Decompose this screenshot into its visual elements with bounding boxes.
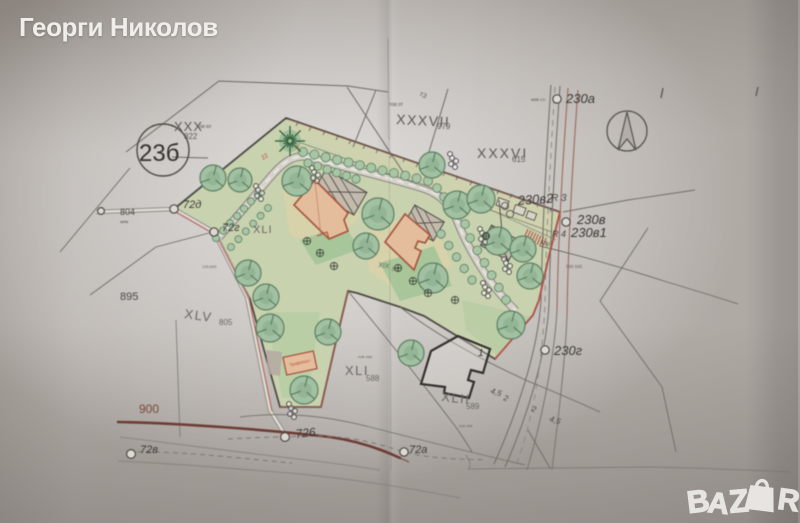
svg-text:230в2: 230в2: [516, 190, 554, 208]
svg-text:2: 2: [501, 393, 509, 403]
svg-text:XLV: XLV: [184, 306, 214, 325]
svg-text:жив со: жив со: [531, 97, 545, 102]
svg-text:зв4в: зв4в: [120, 219, 128, 224]
svg-text:230а: 230а: [565, 91, 595, 106]
svg-text:588: 588: [366, 374, 380, 383]
svg-text:72д: 72д: [183, 199, 201, 211]
svg-text:595 595: 595 595: [566, 264, 583, 269]
svg-text:804: 804: [120, 207, 135, 217]
svg-text:т3: т3: [418, 91, 428, 101]
svg-text:XLI: XLI: [253, 224, 273, 236]
svg-text:230г: 230г: [553, 343, 583, 358]
svg-text:900: 900: [139, 402, 159, 416]
svg-text:2: 2: [529, 404, 537, 414]
svg-text:1: 1: [478, 348, 484, 359]
svg-text:105.895: 105.895: [202, 264, 217, 269]
svg-text:72в: 72в: [140, 444, 158, 456]
svg-text:822: 822: [184, 132, 198, 141]
svg-text:589: 589: [466, 402, 480, 411]
svg-text:8: 8: [296, 145, 299, 151]
svg-text:726: 726: [295, 425, 317, 441]
svg-text:72г: 72г: [222, 222, 240, 234]
svg-text:805: 805: [219, 318, 233, 327]
svg-text:587: 587: [392, 267, 401, 273]
svg-text:тов от: тов от: [389, 102, 404, 108]
svg-text:4,5: 4,5: [548, 414, 562, 426]
svg-text:23б: 23б: [139, 140, 179, 167]
svg-text:A: A: [706, 487, 730, 519]
svg-text:230в1: 230в1: [570, 225, 607, 240]
svg-text:615: 615: [512, 155, 526, 164]
svg-text:тов юг: тов юг: [197, 124, 212, 130]
svg-text:зов зав: зов зав: [459, 423, 472, 428]
svg-text:R 3: R 3: [551, 193, 567, 204]
svg-text:4,5: 4,5: [489, 386, 503, 398]
svg-text:R: R: [776, 483, 800, 519]
svg-text:895: 895: [120, 291, 138, 303]
svg-text:979: 979: [437, 122, 451, 131]
svg-text:72а: 72а: [409, 444, 427, 456]
svg-text:R 4: R 4: [552, 229, 566, 239]
svg-text:нов зав: нов зав: [358, 354, 372, 359]
